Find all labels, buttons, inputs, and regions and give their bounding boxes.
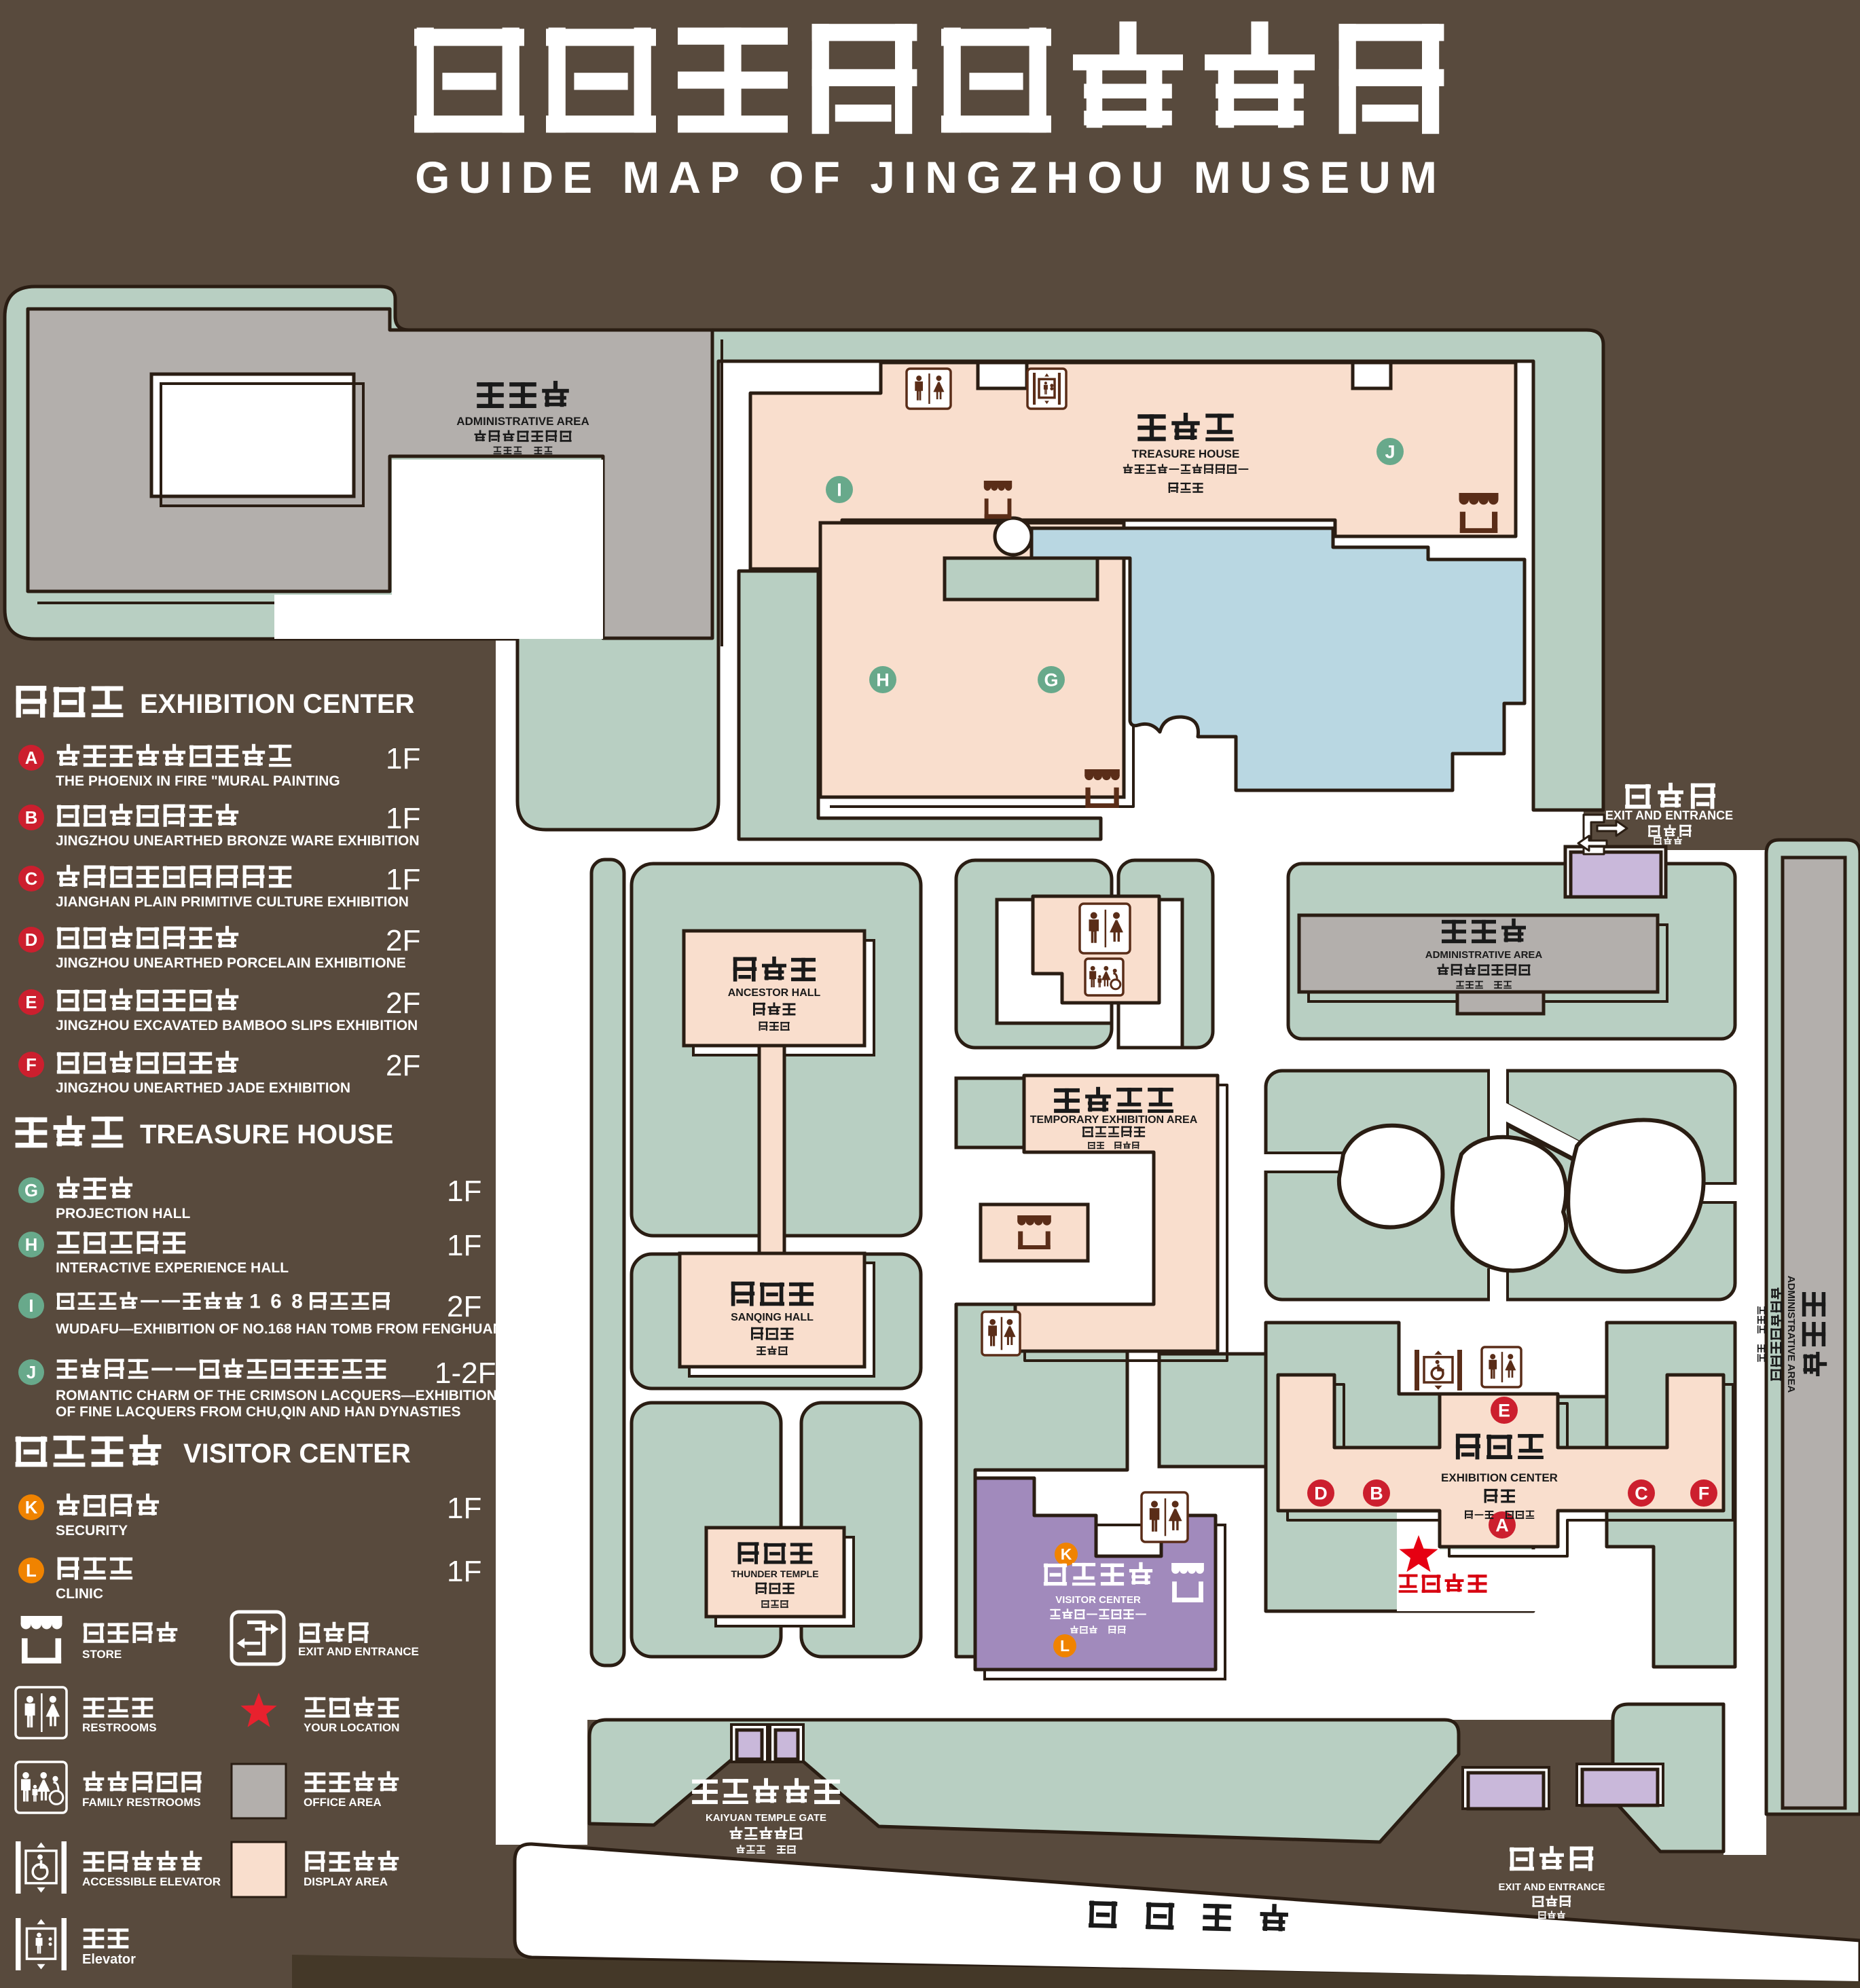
svg-text:EXIT AND ENTRANCE: EXIT AND ENTRANCE bbox=[1499, 1881, 1605, 1893]
svg-text:1F: 1F bbox=[447, 1229, 481, 1262]
svg-text:G: G bbox=[24, 1181, 38, 1200]
svg-text:ADMINISTRATIVE AREA: ADMINISTRATIVE AREA bbox=[456, 415, 589, 428]
svg-text:WUDAFU—EXHIBITION OF NO.168 HA: WUDAFU—EXHIBITION OF NO.168 HAN TOMB FRO… bbox=[56, 1321, 555, 1337]
svg-text:A: A bbox=[25, 749, 38, 768]
svg-text:JINGZHOU EXCAVATED BAMBOO SLIP: JINGZHOU EXCAVATED BAMBOO SLIPS EXHIBITI… bbox=[56, 1018, 418, 1033]
svg-text:8: 8 bbox=[291, 1290, 302, 1312]
svg-text:L: L bbox=[1060, 1637, 1070, 1655]
svg-text:JIANGHAN PLAIN PRIMITIVE CULTU: JIANGHAN PLAIN PRIMITIVE CULTURE EXHIBIT… bbox=[56, 894, 409, 910]
svg-text:FAMILY RESTROOMS: FAMILY RESTROOMS bbox=[82, 1796, 201, 1809]
svg-text:1: 1 bbox=[249, 1290, 260, 1312]
svg-text:SECURITY: SECURITY bbox=[56, 1523, 128, 1539]
svg-text:GUIDE MAP OF JINGZHOU MUSEUM: GUIDE MAP OF JINGZHOU MUSEUM bbox=[415, 152, 1446, 202]
svg-text:VISITOR CENTER: VISITOR CENTER bbox=[183, 1439, 411, 1469]
svg-text:J: J bbox=[1385, 442, 1395, 462]
svg-text:TEMPORARY EXHIBITION AREA: TEMPORARY EXHIBITION AREA bbox=[1030, 1114, 1198, 1126]
svg-text:6: 6 bbox=[270, 1290, 281, 1312]
svg-text:KAIYUAN TEMPLE GATE: KAIYUAN TEMPLE GATE bbox=[706, 1812, 826, 1824]
svg-text:EXIT AND ENTRANCE: EXIT AND ENTRANCE bbox=[1605, 809, 1733, 822]
svg-text:B: B bbox=[25, 809, 38, 828]
svg-text:1F: 1F bbox=[386, 802, 420, 835]
svg-text:EXIT AND ENTRANCE: EXIT AND ENTRANCE bbox=[298, 1645, 419, 1658]
svg-text:2F: 2F bbox=[447, 1290, 481, 1323]
svg-text:1F: 1F bbox=[386, 742, 420, 775]
svg-text:CLINIC: CLINIC bbox=[56, 1586, 103, 1602]
svg-text:2F: 2F bbox=[386, 924, 420, 957]
svg-text:D: D bbox=[25, 931, 38, 950]
svg-text:Elevator: Elevator bbox=[82, 1952, 136, 1967]
svg-text:2F: 2F bbox=[386, 1049, 420, 1082]
svg-text:C: C bbox=[25, 870, 38, 889]
svg-text:JINGZHOU UNEARTHED PORCELAIN E: JINGZHOU UNEARTHED PORCELAIN EXHIBITIONE bbox=[56, 955, 406, 971]
svg-text:G: G bbox=[1044, 670, 1058, 691]
svg-text:EXHIBITION CENTER: EXHIBITION CENTER bbox=[1441, 1471, 1558, 1484]
svg-text:I: I bbox=[29, 1297, 33, 1316]
svg-text:INTERACTIVE EXPERIENCE HALL: INTERACTIVE EXPERIENCE HALL bbox=[56, 1260, 289, 1276]
svg-text:RESTROOMS: RESTROOMS bbox=[82, 1721, 157, 1734]
svg-text:D: D bbox=[1314, 1483, 1328, 1503]
svg-text:B: B bbox=[1370, 1483, 1383, 1503]
svg-text:OFFICE AREA: OFFICE AREA bbox=[304, 1796, 382, 1809]
svg-text:YOUR LOCATION: YOUR LOCATION bbox=[304, 1721, 399, 1734]
svg-text:TREASURE HOUSE: TREASURE HOUSE bbox=[140, 1120, 393, 1149]
svg-text:K: K bbox=[1061, 1545, 1072, 1563]
svg-text:ANCESTOR HALL: ANCESTOR HALL bbox=[728, 987, 821, 999]
svg-text:STORE: STORE bbox=[82, 1648, 122, 1661]
svg-text:TREASURE HOUSE: TREASURE HOUSE bbox=[1132, 447, 1240, 460]
svg-text:L: L bbox=[26, 1562, 37, 1581]
svg-text:1-2F: 1-2F bbox=[435, 1357, 496, 1390]
svg-text:SANQING HALL: SANQING HALL bbox=[731, 1312, 814, 1323]
svg-text:THE PHOENIX IN FIRE "MURAL PAI: THE PHOENIX IN FIRE "MURAL PAINTING bbox=[56, 773, 340, 789]
svg-text:EXHIBITION CENTER: EXHIBITION CENTER bbox=[140, 689, 415, 719]
svg-text:OF FINE LACQUERS FROM CHU,QIN: OF FINE LACQUERS FROM CHU,QIN AND HAN DY… bbox=[56, 1404, 461, 1420]
svg-text:E: E bbox=[1498, 1400, 1510, 1420]
svg-text:JINGZHOU UNEARTHED JADE EXHIBI: JINGZHOU UNEARTHED JADE EXHIBITION bbox=[56, 1080, 350, 1096]
svg-text:I: I bbox=[837, 480, 842, 500]
svg-text:1F: 1F bbox=[447, 1175, 481, 1208]
svg-text:ROMANTIC CHARM OF THE CRIMSON: ROMANTIC CHARM OF THE CRIMSON LACQUERS—E… bbox=[56, 1388, 507, 1403]
svg-text:ACCESSIBLE ELEVATOR: ACCESSIBLE ELEVATOR bbox=[82, 1875, 221, 1888]
svg-text:THUNDER TEMPLE: THUNDER TEMPLE bbox=[731, 1568, 818, 1579]
svg-text:ADMINISTRATIVE AREA: ADMINISTRATIVE AREA bbox=[1785, 1276, 1797, 1393]
svg-text:PROJECTION HALL: PROJECTION HALL bbox=[56, 1206, 191, 1221]
svg-text:DISPLAY AREA: DISPLAY AREA bbox=[304, 1875, 388, 1888]
svg-text:2F: 2F bbox=[386, 987, 420, 1020]
svg-text:1F: 1F bbox=[447, 1555, 481, 1588]
svg-text:C: C bbox=[1635, 1483, 1648, 1503]
svg-text:H: H bbox=[876, 670, 890, 691]
svg-text:VISITOR CENTER: VISITOR CENTER bbox=[1055, 1594, 1141, 1606]
svg-text:1F: 1F bbox=[447, 1492, 481, 1525]
svg-text:JINGZHOU UNEARTHED BRONZE WARE: JINGZHOU UNEARTHED BRONZE WARE EXHIBITIO… bbox=[56, 833, 420, 849]
svg-text:ADMINISTRATIVE AREA: ADMINISTRATIVE AREA bbox=[1425, 949, 1543, 961]
svg-text:F: F bbox=[1698, 1483, 1710, 1503]
svg-text:J: J bbox=[26, 1363, 36, 1382]
svg-text:F: F bbox=[26, 1056, 37, 1075]
svg-text:E: E bbox=[25, 993, 37, 1012]
svg-text:H: H bbox=[25, 1236, 38, 1255]
svg-text:1F: 1F bbox=[386, 863, 420, 896]
svg-text:K: K bbox=[25, 1498, 38, 1517]
